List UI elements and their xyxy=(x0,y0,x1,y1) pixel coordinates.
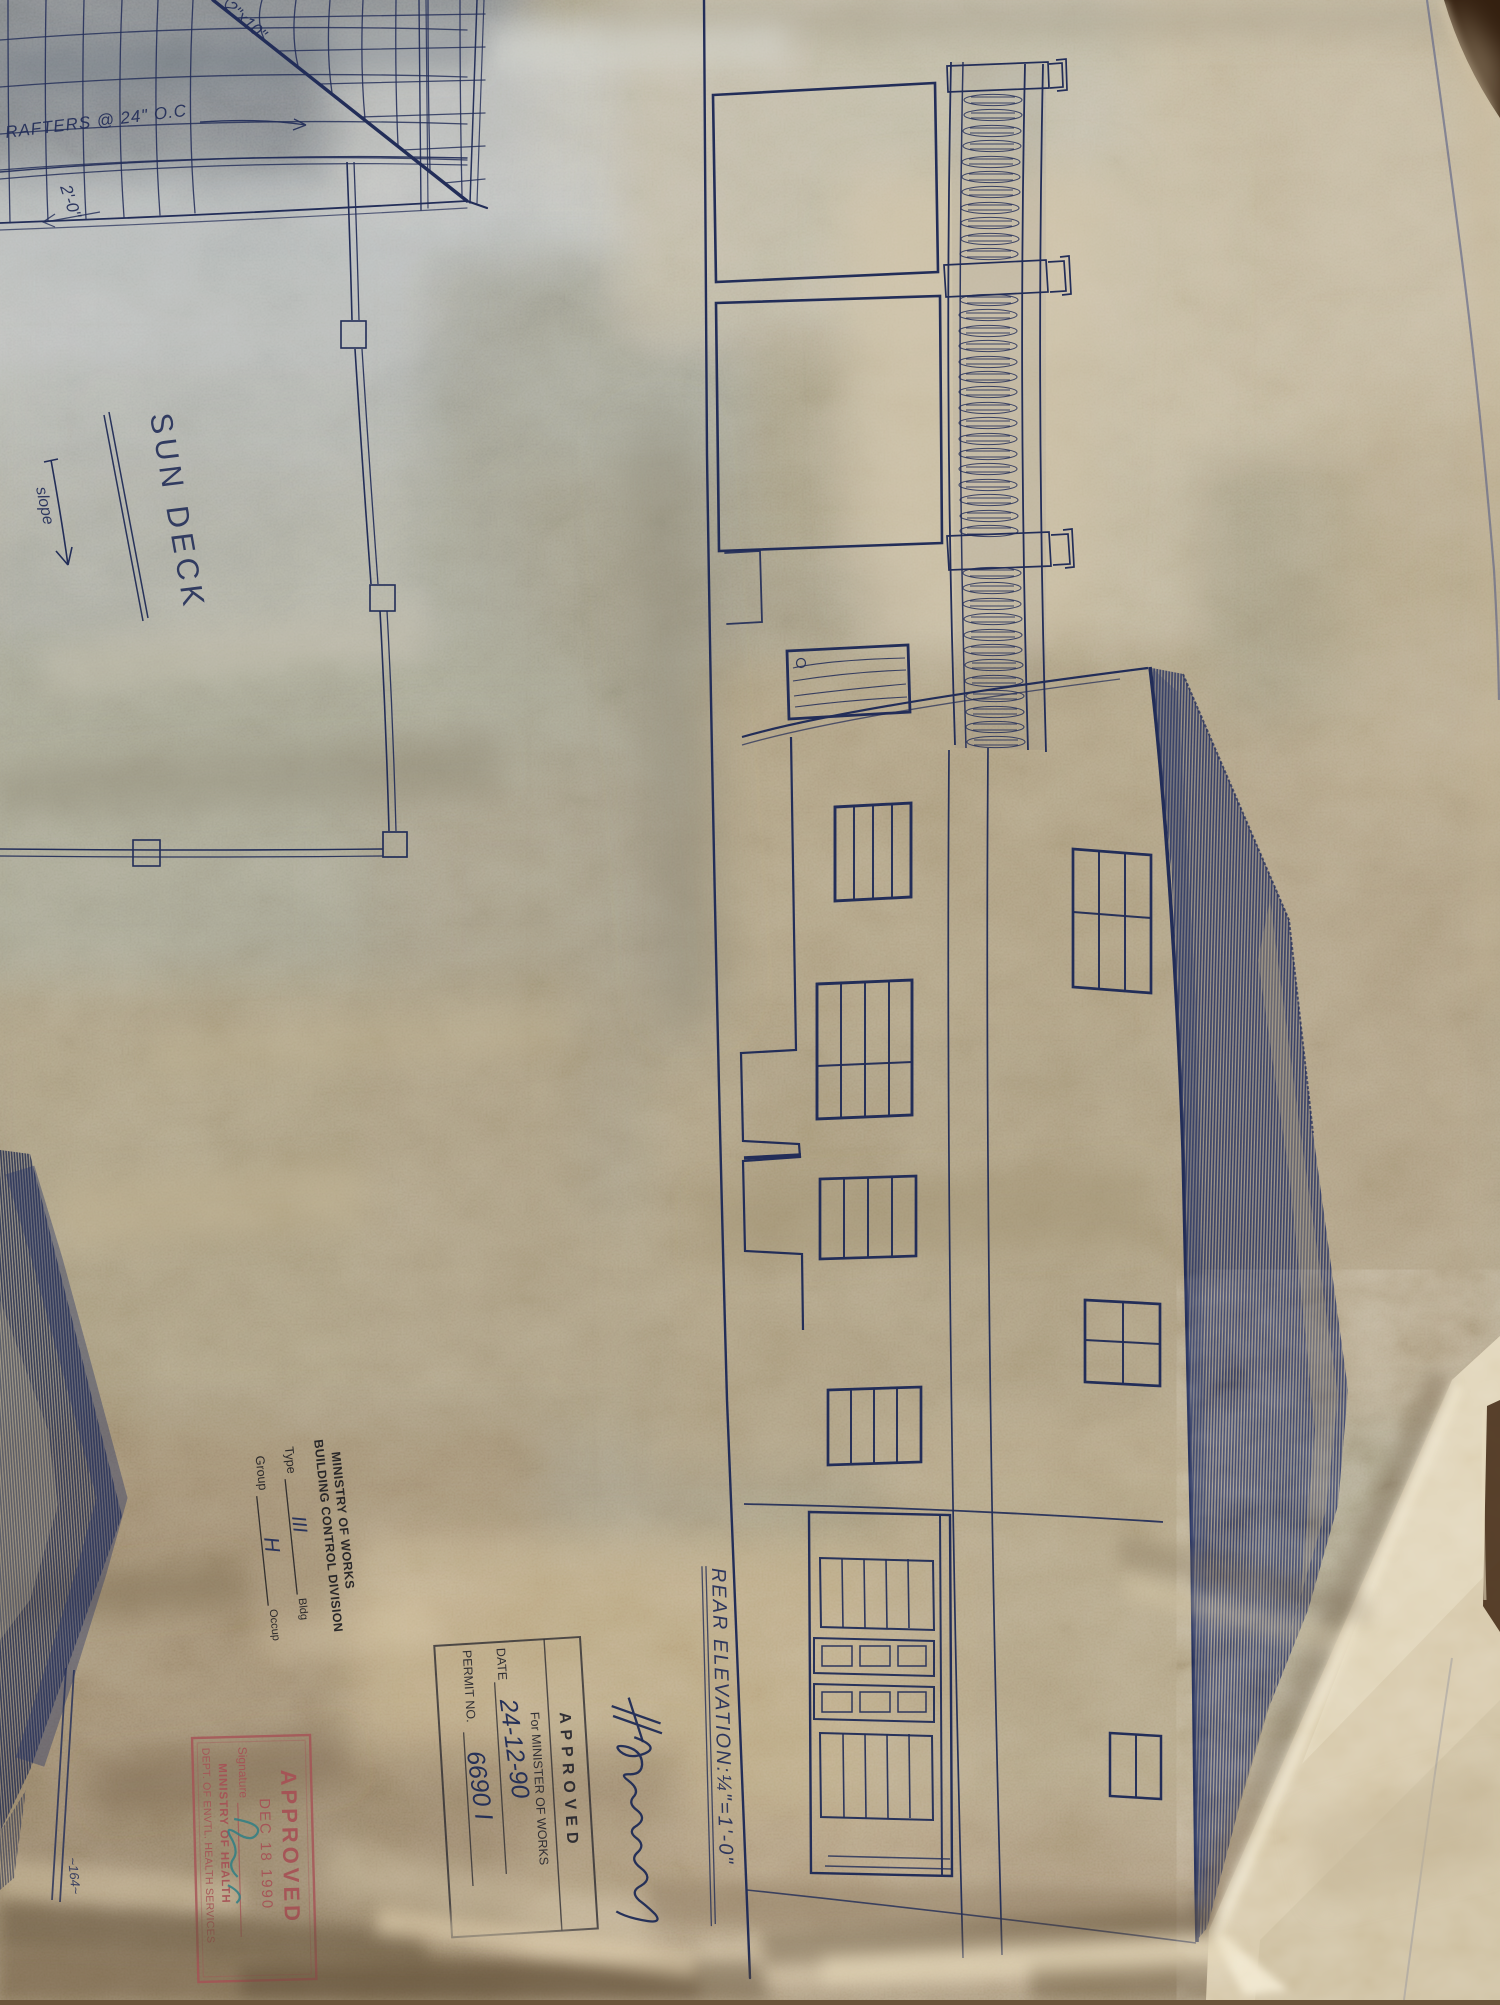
svg-text:Type: Type xyxy=(282,1446,299,1474)
svg-text:DEC 18 1990: DEC 18 1990 xyxy=(256,1798,276,1910)
svg-text:III: III xyxy=(287,1515,311,1534)
svg-text:Signature: Signature xyxy=(235,1747,250,1799)
svg-text:Bldg: Bldg xyxy=(296,1597,310,1620)
svg-text:APPROVED: APPROVED xyxy=(276,1769,305,1925)
svg-text:DATE: DATE xyxy=(494,1647,510,1680)
